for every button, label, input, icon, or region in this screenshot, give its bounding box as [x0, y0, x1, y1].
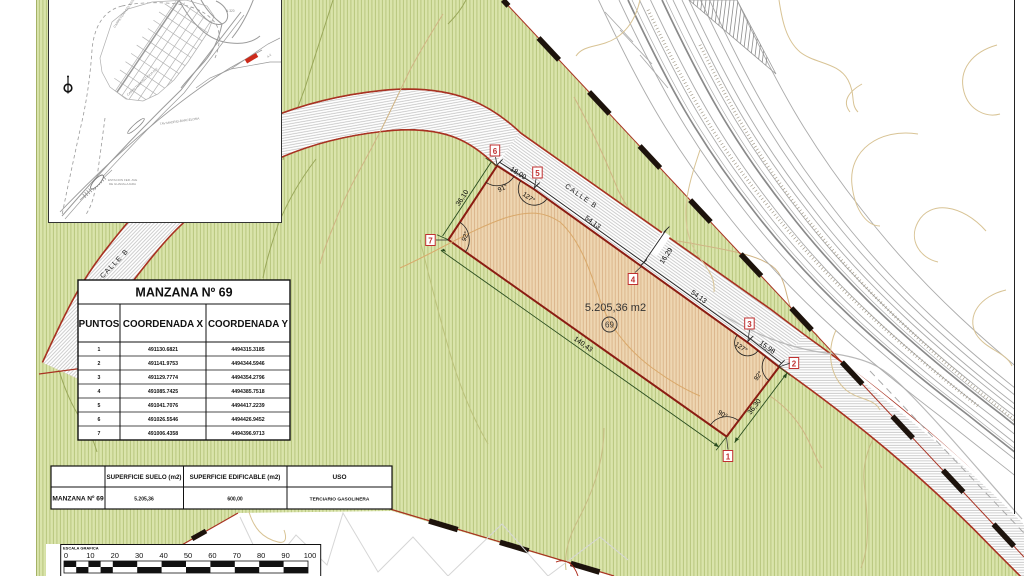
svg-text:TERCIARIO GASOLINERA: TERCIARIO GASOLINERA [310, 497, 370, 503]
svg-text:COORDENADA Y: COORDENADA Y [208, 319, 288, 330]
svg-text:DE GUADALAJARA: DE GUADALAJARA [109, 182, 136, 186]
svg-text:60: 60 [208, 551, 216, 560]
svg-text:5: 5 [98, 403, 101, 409]
svg-text:4: 4 [98, 389, 101, 395]
svg-text:30: 30 [135, 551, 143, 560]
svg-text:600,00: 600,00 [227, 497, 243, 503]
svg-text:1: 1 [98, 347, 101, 353]
svg-text:100: 100 [304, 551, 317, 560]
svg-text:2: 2 [792, 360, 797, 369]
svg-text:491141.9753: 491141.9753 [148, 361, 178, 367]
svg-text:2: 2 [98, 361, 101, 367]
svg-text:6: 6 [98, 417, 101, 423]
svg-text:491129.7774: 491129.7774 [148, 375, 178, 381]
svg-text:90: 90 [281, 551, 289, 560]
svg-text:SUPERFICIE SUELO (m2): SUPERFICIE SUELO (m2) [107, 474, 182, 481]
svg-text:4494426.9452: 4494426.9452 [231, 417, 264, 423]
svg-text:4494396.9713: 4494396.9713 [231, 431, 264, 437]
svg-text:0: 0 [64, 551, 68, 560]
svg-text:4494315.3185: 4494315.3185 [231, 347, 264, 353]
svg-text:491085.7425: 491085.7425 [148, 389, 178, 395]
svg-text:6: 6 [493, 147, 498, 156]
svg-text:70: 70 [233, 551, 241, 560]
svg-text:50: 50 [184, 551, 192, 560]
svg-text:4494417.2239: 4494417.2239 [231, 403, 264, 409]
svg-text:80: 80 [257, 551, 265, 560]
svg-text:3: 3 [98, 375, 101, 381]
svg-text:PUNTOS: PUNTOS [79, 319, 120, 330]
svg-text:491130.6821: 491130.6821 [148, 347, 178, 353]
svg-text:MANZANA Nº 69: MANZANA Nº 69 [52, 496, 104, 503]
svg-text:7: 7 [98, 431, 101, 437]
svg-text:4494354.2796: 4494354.2796 [231, 375, 264, 381]
svg-text:4: 4 [631, 276, 636, 285]
svg-text:20: 20 [111, 551, 119, 560]
svg-text:491006.4358: 491006.4358 [148, 431, 178, 437]
svg-text:MANZANA Nº 69: MANZANA Nº 69 [135, 286, 232, 300]
svg-text:COORDENADA X: COORDENADA X [123, 319, 204, 330]
svg-text:5: 5 [535, 169, 540, 178]
svg-text:491041.7076: 491041.7076 [148, 403, 178, 409]
svg-text:5.205,36 m2: 5.205,36 m2 [585, 302, 646, 314]
svg-text:40: 40 [159, 551, 167, 560]
svg-text:ESCALA GRAFICA: ESCALA GRAFICA [63, 546, 99, 551]
svg-text:7: 7 [428, 237, 433, 246]
svg-text:491026.5546: 491026.5546 [148, 417, 178, 423]
svg-text:N 320: N 320 [226, 9, 235, 13]
svg-text:4494385.7518: 4494385.7518 [231, 389, 264, 395]
svg-text:5.205,36: 5.205,36 [134, 497, 154, 503]
svg-text:3: 3 [747, 320, 752, 329]
svg-text:USO: USO [332, 474, 346, 481]
svg-text:SUPERFICIE EDIFICABLE (m2): SUPERFICIE EDIFICABLE (m2) [190, 474, 281, 481]
svg-text:4494344.5946: 4494344.5946 [231, 361, 264, 367]
svg-text:1: 1 [726, 453, 731, 462]
svg-text:69: 69 [605, 321, 614, 330]
svg-text:10: 10 [86, 551, 94, 560]
